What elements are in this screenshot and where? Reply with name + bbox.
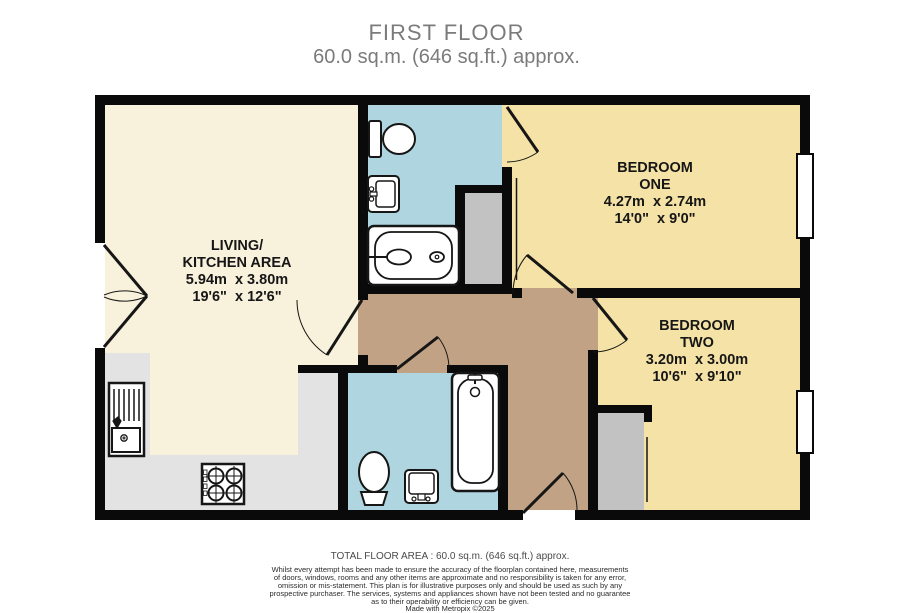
sink-icon — [368, 176, 399, 212]
bedroom-two-label: BEDROOM TWO 3.20m x 3.00m 10'6" x 9'10" — [597, 318, 797, 386]
metropix-credit: Made with Metropix ©2025 — [0, 604, 900, 613]
living-kitchen-label: LIVING/ KITCHEN AREA 5.94m x 3.80m 19'6"… — [137, 238, 337, 306]
fixtures-and-doors-layer — [0, 0, 900, 613]
hob-icon — [202, 464, 244, 504]
toilet-icon — [369, 121, 415, 157]
total-floor-area: TOTAL FLOOR AREA : 60.0 sq.m. (646 sq.ft… — [0, 551, 900, 562]
bedroom-one-door-icon — [513, 255, 573, 293]
floorplan-page: FIRST FLOOR 60.0 sq.m. (646 sq.ft.) appr… — [0, 0, 900, 613]
sink-icon — [405, 470, 438, 503]
kitchen-sink-icon — [109, 383, 144, 456]
entry-door-icon — [523, 473, 577, 513]
ensuite-door-icon — [507, 107, 538, 162]
bathtub-icon — [368, 226, 459, 285]
bedroom-one-label: BEDROOM ONE 4.27m x 2.74m 14'0" x 9'0" — [555, 160, 755, 228]
toilet-icon — [359, 452, 389, 505]
living-door-icon — [297, 300, 362, 355]
bathroom-bottom-door-icon — [397, 337, 449, 369]
bathtub-icon — [452, 373, 499, 491]
